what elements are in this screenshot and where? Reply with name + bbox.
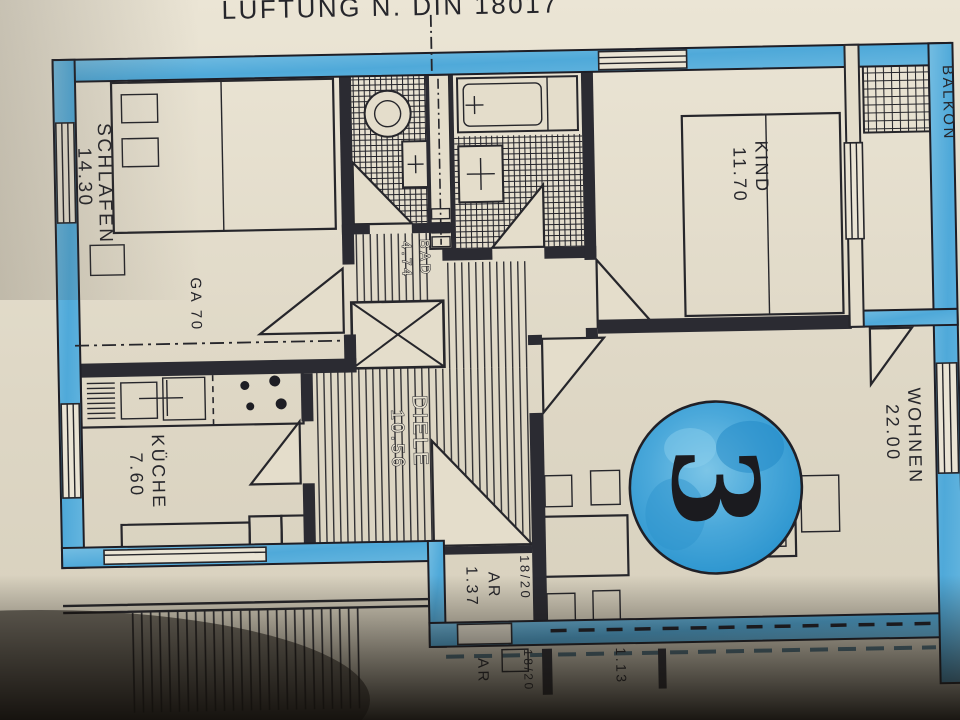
wc-basin-icon xyxy=(364,90,411,137)
hall-strip-floor2 xyxy=(443,261,529,369)
svg-text:KÜCHE: KÜCHE xyxy=(148,434,169,510)
svg-text:11.70: 11.70 xyxy=(729,147,750,204)
shaft-x-symbol xyxy=(351,301,444,369)
svg-text:DIELE: DIELE xyxy=(408,395,431,468)
apartment-number-badge: 3 xyxy=(628,400,803,575)
room-label-balkon: BALKON xyxy=(939,65,957,141)
floor-plan-photo: GA 70 LÜFTUNG N. DIN 18017 SCHLAFEN 14.3… xyxy=(0,0,960,720)
apartment-number: 3 xyxy=(645,445,786,530)
vent-leader-line xyxy=(431,15,432,73)
svg-text:BAD: BAD xyxy=(417,239,434,277)
washbasin-icon xyxy=(402,141,429,187)
svg-text:10.56: 10.56 xyxy=(387,409,408,469)
svg-text:22.00: 22.00 xyxy=(882,404,903,462)
svg-text:WOHNEN: WOHNEN xyxy=(904,387,926,484)
floor-plan-svg: GA 70 LÜFTUNG N. DIN 18017 SCHLAFEN 14.3… xyxy=(0,0,960,720)
svg-text:7.60: 7.60 xyxy=(126,452,147,497)
corner-shadow xyxy=(0,0,200,300)
bathtub-icon xyxy=(457,76,578,132)
svg-text:KIND: KIND xyxy=(751,140,772,193)
bath-washbasin-icon xyxy=(458,146,503,203)
svg-text:4.74: 4.74 xyxy=(399,241,415,279)
